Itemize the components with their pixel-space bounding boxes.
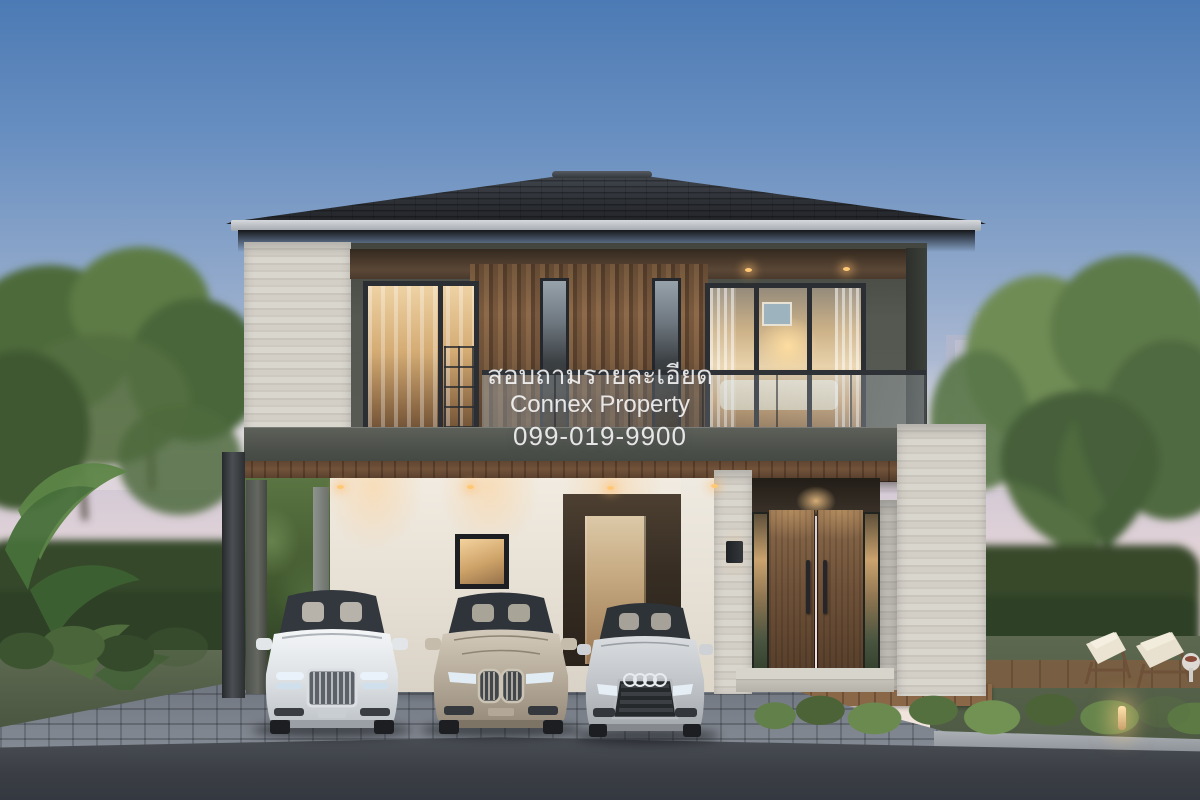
vignette [0,0,1200,800]
architectural-render: สอบถามรายละเอียด Connex Property 099-019… [0,0,1200,800]
